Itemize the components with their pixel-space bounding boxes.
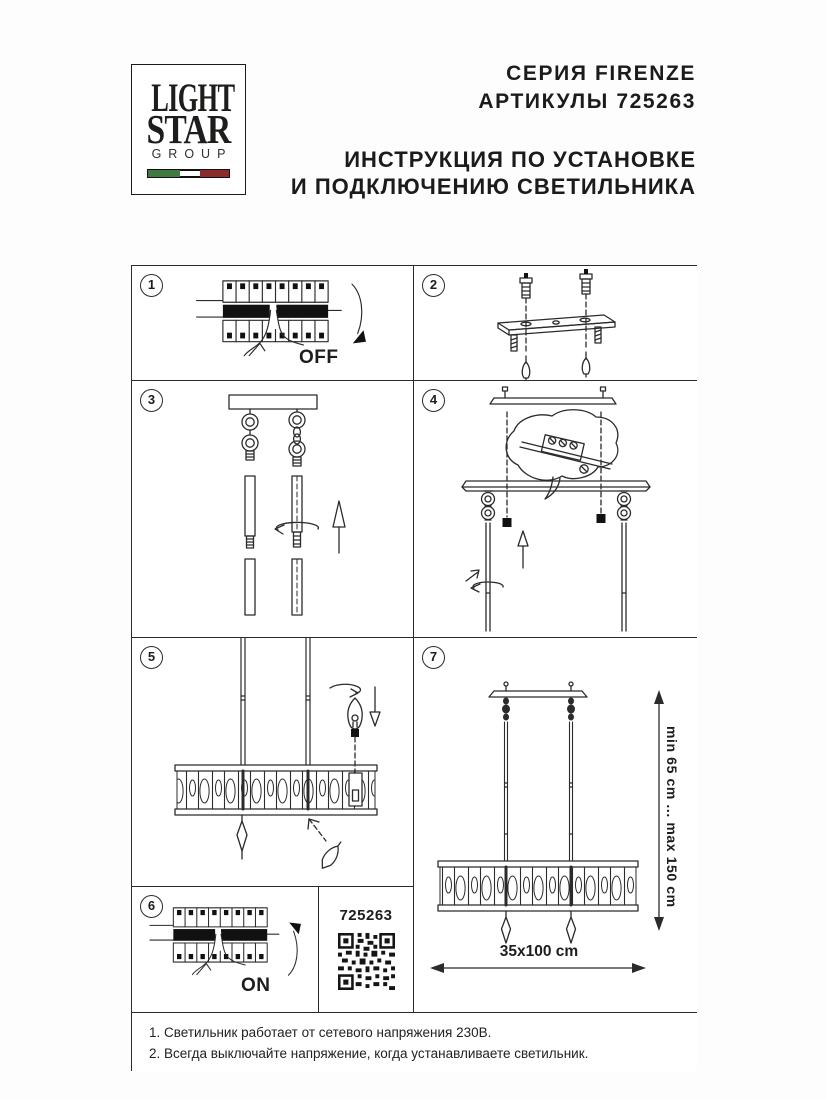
panel-step-5: 5 bbox=[132, 638, 414, 887]
note-line-1: 1. Светильник работает от сетевого напря… bbox=[149, 1022, 697, 1043]
header-titles: СЕРИЯ FIRENZE АРТИКУЛЫ 725263 ИНСТРУКЦИЯ… bbox=[280, 60, 696, 200]
rotate-arrow-icon bbox=[466, 570, 503, 592]
threaded-stud-icon bbox=[595, 327, 601, 343]
off-label: OFF bbox=[299, 347, 339, 369]
step-number: 4 bbox=[422, 389, 445, 412]
canopy-wiring-drawing bbox=[414, 381, 697, 638]
panel-step-4: 4 bbox=[414, 381, 697, 638]
step-number: 3 bbox=[140, 389, 163, 412]
down-arrow-icon bbox=[370, 687, 380, 726]
height-range-label: min 65 cm ... max 150 cm bbox=[664, 726, 680, 908]
wire-terminal bbox=[597, 514, 606, 523]
circuit-breaker-on-drawing bbox=[144, 899, 309, 986]
candle-bulb-icon bbox=[348, 698, 362, 737]
ceiling-canopy bbox=[490, 387, 616, 404]
decorative-knots bbox=[502, 698, 575, 721]
step-number: 2 bbox=[422, 274, 445, 297]
step-number: 6 bbox=[140, 895, 163, 918]
screw-icon bbox=[522, 356, 529, 381]
width-dimension-arrow bbox=[430, 963, 646, 973]
suspension-rods bbox=[505, 722, 573, 861]
instruction-sheet: LIGHT STAR GROUP СЕРИЯ FIRENZE АРТИКУЛЫ … bbox=[0, 0, 826, 1100]
wall-anchor-icon bbox=[580, 269, 592, 294]
crystal-band bbox=[175, 765, 377, 815]
threaded-stud-icon bbox=[511, 335, 517, 351]
flag-red-segment bbox=[200, 170, 229, 177]
height-dimension-arrow bbox=[654, 690, 664, 931]
up-arrow-icon bbox=[333, 501, 345, 553]
on-label: ON bbox=[241, 975, 271, 997]
wall-anchor-icon bbox=[520, 273, 532, 298]
article-line: АРТИКУЛЫ 725263 bbox=[280, 88, 696, 116]
page-title-line1: ИНСТРУКЦИЯ ПО УСТАНОВКЕ bbox=[280, 146, 696, 173]
panel-step-7: 7 bbox=[414, 638, 697, 1013]
step-number: 5 bbox=[140, 646, 163, 669]
circuit-breaker-off-drawing bbox=[190, 271, 375, 368]
bracket-bar bbox=[498, 315, 615, 335]
pendant-drop-icon bbox=[308, 819, 345, 872]
rod-assembly-drawing bbox=[132, 381, 414, 638]
step-number: 1 bbox=[140, 274, 163, 297]
rotate-arrow-icon bbox=[330, 684, 361, 697]
size-label: 35x100 cm bbox=[469, 943, 609, 961]
finial-drop-icon bbox=[502, 911, 576, 943]
lamp-socket bbox=[349, 773, 362, 806]
switch-down-arrow-icon bbox=[352, 284, 366, 343]
lamp-install-drawing bbox=[132, 638, 414, 887]
footer-notes: 1. Светильник работает от сетевого напря… bbox=[132, 1013, 697, 1071]
up-arrow-icon bbox=[518, 531, 528, 568]
hanger-chain-icon bbox=[289, 409, 305, 466]
suspension-rods bbox=[241, 638, 310, 765]
finial-drop-icon bbox=[237, 815, 247, 859]
screw-icon bbox=[582, 352, 589, 377]
series-line: СЕРИЯ FIRENZE bbox=[280, 60, 696, 88]
flag-green-segment bbox=[148, 170, 180, 177]
switch-up-arrow-icon bbox=[288, 922, 300, 975]
note-line-2: 2. Всегда выключайте напряжение, когда у… bbox=[149, 1043, 697, 1064]
rod-sections bbox=[245, 476, 302, 615]
page-title-line2: И ПОДКЛЮЧЕНИЮ СВЕТИЛЬНИКА bbox=[280, 173, 696, 200]
panel-step-6: 6 bbox=[132, 887, 319, 1013]
wire-terminal bbox=[503, 518, 512, 527]
qr-code bbox=[338, 933, 395, 990]
lightstar-logo: LIGHT STAR GROUP bbox=[131, 64, 246, 195]
logo-word-star: STAR bbox=[142, 113, 235, 145]
ceiling-canopy bbox=[489, 682, 587, 697]
decorative-column bbox=[618, 491, 631, 631]
hanger-rings-icon bbox=[242, 409, 258, 460]
mounting-bracket-drawing bbox=[414, 266, 697, 381]
crystal-band bbox=[438, 861, 638, 911]
panel-step-1: 1 bbox=[132, 266, 414, 381]
panel-step-2: 2 bbox=[414, 266, 697, 381]
ceiling-plate bbox=[229, 395, 317, 409]
qr-article-number: 725263 bbox=[319, 907, 413, 924]
step-number: 7 bbox=[422, 646, 445, 669]
decorative-column bbox=[482, 491, 495, 631]
panel-step-3: 3 bbox=[132, 381, 414, 638]
instruction-grid: 1 bbox=[131, 265, 697, 1071]
italy-flag-stripe bbox=[147, 169, 230, 178]
qr-cell: 725263 bbox=[319, 887, 414, 1013]
flag-white-segment bbox=[180, 170, 199, 177]
